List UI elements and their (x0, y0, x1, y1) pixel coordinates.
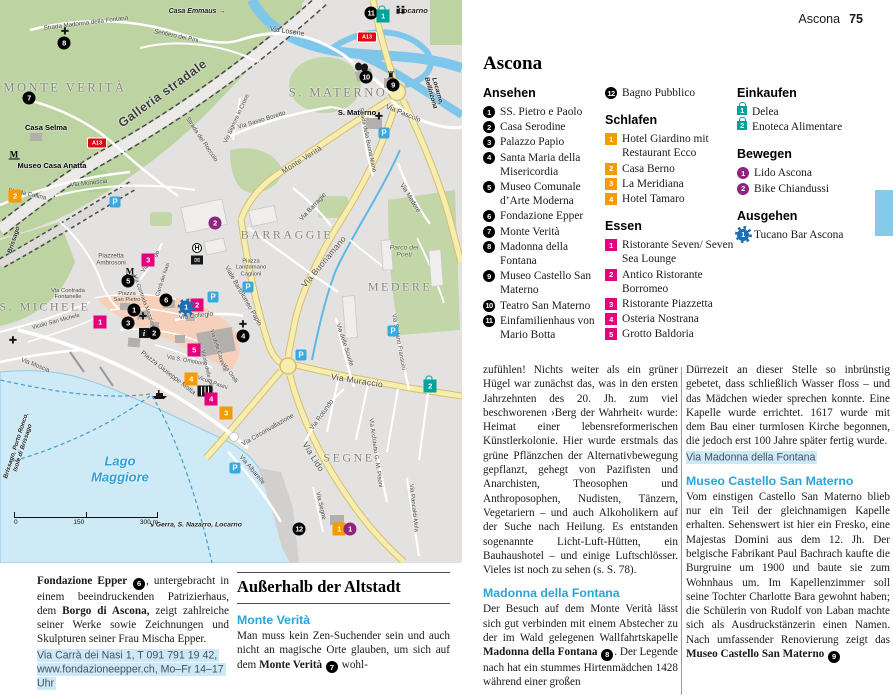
parking-icon: P (388, 326, 399, 337)
legend-item: 2Casa Berno (605, 162, 735, 176)
chapter-thumb-tab (875, 190, 893, 236)
legend-item-label: Casa Berno (622, 162, 735, 176)
marker-hotel-2: 2 (9, 190, 22, 203)
scale-bar-labels: 0150300 m (14, 519, 158, 526)
marker-sight-11: 11 (483, 315, 495, 327)
inline-marker-9: 9 (828, 651, 840, 663)
marker-hotel-4: 4 (605, 193, 617, 205)
legend-item-label: Grotto Baldoria (622, 327, 735, 341)
page-title: Ascona (483, 53, 542, 75)
legend-item: 5Museo Comunale d’Arte Moderna (483, 180, 603, 208)
marker-sight-10: 10 (360, 71, 373, 84)
legend-item: 5Grotto Baldoria (605, 327, 735, 341)
paragraph: Der Besuch auf dem Monte Verità lässt si… (483, 602, 678, 689)
legend-item-label: Palazzo Papio (500, 135, 603, 149)
mail-icon: ✉ (191, 256, 203, 265)
marker-sight-6: 6 (483, 210, 495, 222)
legend-item: 2Enoteca Alimentare (737, 120, 879, 134)
paragraph: Fondazione Epper 6, untergebracht in ein… (37, 574, 229, 647)
map-label: MEDERE (368, 281, 432, 294)
inline-marker-8: 8 (601, 649, 613, 661)
address-line: Via Madonna della Fontana (686, 451, 890, 465)
legend-item: 4Santa Maria della Misericordia (483, 151, 603, 179)
article-column-left: zufühlen! Nichts weiter als ein grüner H… (483, 363, 678, 689)
marker-move-1: 1 (344, 523, 357, 536)
parking-icon: P (110, 197, 121, 208)
ascona-city-map: MONTE VERITÀS. MATERNOBARRAGGIEMEDERESEG… (0, 0, 462, 563)
legend-item-label: La Meridiana (622, 177, 735, 191)
legend-heading-ansehen: Ansehen (483, 86, 603, 100)
church-icon: ✚ (139, 312, 147, 323)
marker-food-5: 5 (188, 344, 201, 357)
church-icon: ✚ (375, 112, 383, 123)
marker-sight-3: 3 (122, 317, 135, 330)
legend-item-label: Monte Verità (500, 225, 603, 239)
marker-sight-9: 9 (483, 270, 495, 282)
article-heading: Madonna della Fontana (483, 586, 678, 600)
legend-item: 1Hotel Giardino mit Restaurant Ecco (605, 132, 735, 160)
marker-sight-8: 8 (58, 37, 71, 50)
legend-item-label: Museo Comunale d’Arte Moderna (500, 180, 603, 208)
legend-item: 1Ristorante Seven/ Seven Sea Lounge (605, 238, 735, 266)
marker-move-2: 2 (209, 217, 222, 230)
outside-old-town-section: Außerhalb der AltstadtMonte VeritàMan mu… (237, 572, 450, 673)
map-label: S. MICHELE (0, 301, 91, 314)
marker-hotel-1: 1 (605, 133, 617, 145)
marker-shop-1: 1 (377, 10, 390, 23)
legend-item-label: Ristorante Seven/ Seven Sea Lounge (622, 238, 735, 266)
legend-item: 9Museo Castello San Materno (483, 269, 603, 297)
marker-move-1: 1 (737, 167, 749, 179)
map-label: Piazza Landamano Caglioni (236, 259, 267, 278)
marker-sight-3: 3 (483, 136, 495, 148)
church-icon: ✚ (9, 336, 17, 347)
article-heading: Museo Castello San Materno (686, 474, 890, 488)
marker-hotel-2: 2 (605, 163, 617, 175)
legend-item-label: Madonna della Fontana (500, 240, 603, 268)
paragraph: Dürrezeit an dieser Stelle so inbrünstig… (686, 363, 890, 449)
guidebook-page: MONTE VERITÀS. MATERNOBARRAGGIEMEDERESEG… (0, 0, 893, 700)
marker-hotel-3: 3 (605, 178, 617, 190)
legend-item-label: Fondazione Epper (500, 209, 603, 223)
marker-sight-12: 12 (293, 523, 306, 536)
map-label: ↘ Gerra, S. Nazarro, Locarno (148, 521, 242, 528)
map-label: Lago Maggiore (91, 453, 149, 484)
marker-food-5: 5 (605, 328, 617, 340)
marker-sight-4: 4 (483, 152, 495, 164)
map-label: BARRAGGIE (241, 229, 334, 242)
map-label: Casa Emmaus → (169, 8, 226, 16)
marker-sight-7: 7 (483, 226, 495, 238)
marker-sight-4: 4 (237, 330, 250, 343)
fondazione-epper-paragraph: Fondazione Epper 6, untergebracht in ein… (37, 574, 229, 691)
marker-food-3: 3 (605, 298, 617, 310)
legend-item-label: Teatro San Materno (500, 299, 603, 313)
paragraph: Man muss kein Zen-Suchender sein und auc… (237, 629, 450, 673)
marker-sight-7: 7 (23, 92, 36, 105)
legend-item: 6Fondazione Epper (483, 209, 603, 223)
map-label: Casa Selma (25, 124, 67, 132)
legend-item-label: Antico Ristorante Borromeo (622, 268, 735, 296)
legend-heading-ausgehen: Ausgehen (737, 209, 879, 223)
map-label: Parco dei Poeti (390, 245, 419, 260)
legend-item: 4Hotel Tamaro (605, 192, 735, 206)
parking-icon: P (230, 463, 241, 474)
legend-item-label: Osteria Nostrana (622, 312, 735, 326)
marker-sight-8: 8 (483, 241, 495, 253)
legend-heading-einkaufen: Einkaufen (737, 86, 879, 100)
marker-sight-2: 2 (483, 121, 495, 133)
marker-food-1: 1 (94, 316, 107, 329)
museum-icon: M (9, 151, 20, 160)
page-number: 75 (849, 12, 863, 26)
map-label: MONTE VERITÀ (3, 81, 126, 95)
paragraph: Vom einstigen Castello San Materno blieb… (686, 490, 890, 663)
marker-sight-5: 5 (122, 275, 135, 288)
map-label: Locarno (398, 7, 428, 15)
legend-item: 3Palazzo Papio (483, 135, 603, 149)
legend-item: 12Bagno Pubblico (605, 86, 735, 100)
inline-marker-6: 6 (133, 578, 145, 590)
legend-item-label: Santa Maria della Misericordia (500, 151, 603, 179)
legend-item: 2Casa Serodine (483, 120, 603, 134)
scale-label: 0 (14, 519, 18, 526)
marker-shop-2: 2 (737, 121, 747, 130)
marker-food-4: 4 (605, 313, 617, 325)
legend-heading-schlafen: Schlafen (605, 113, 735, 127)
map-scale-bar: 0150300 m (14, 512, 158, 526)
article-column-right: Dürrezeit an dieser Stelle so inbrünstig… (686, 363, 890, 663)
marker-sight-1: 1 (483, 106, 495, 118)
legend-column-sleep-eat: 12Bagno PubblicoSchlafen1Hotel Giardino … (605, 86, 735, 343)
legend-item-label: Casa Serodine (500, 120, 603, 134)
marker-sight-5: 5 (483, 181, 495, 193)
a13-icon: A13 (357, 32, 377, 43)
legend-item-label: Hotel Giardino mit Restaurant Ecco (622, 132, 735, 160)
address-line: Via Carrà dei Nasi 1, T 091 791 19 42, w… (37, 649, 229, 691)
marker-move-2: 2 (737, 183, 749, 195)
legend-item: 1SS. Pietro e Paolo (483, 105, 603, 119)
marker-night-1: 1 (737, 229, 749, 241)
map-label: Via Contrada Fontanelle (51, 288, 85, 301)
legend-item-label: Tucano Bar Ascona (754, 228, 879, 242)
legend-item: 1Delea (737, 105, 879, 119)
parking-icon: P (379, 128, 390, 139)
marker-sight-1: 1 (128, 304, 141, 317)
column-divider (681, 367, 682, 695)
legend-item: 1Tucano Bar Ascona (737, 228, 879, 242)
marker-sight-12: 12 (605, 87, 617, 99)
legend-item: 7Monte Verità (483, 225, 603, 239)
people-icon (397, 9, 400, 14)
legend-item: 3Ristorante Piazzetta (605, 297, 735, 311)
legend-item-label: SS. Pietro e Paolo (500, 105, 603, 119)
legend-item: 10Teatro San Materno (483, 299, 603, 313)
map-label: Piazzetta Ambrosoni (96, 253, 126, 266)
legend-item: 3La Meridiana (605, 177, 735, 191)
legend-item: 11Einfamilienhaus von Mario Botta (483, 314, 603, 342)
legend-column-sights: Ansehen1SS. Pietro e Paolo2Casa Serodine… (483, 86, 603, 343)
hotelH-icon: H (192, 243, 202, 253)
marker-sight-2: 2 (148, 327, 161, 340)
marker-food-3: 3 (142, 254, 155, 267)
legend-item-label: Ristorante Piazzetta (622, 297, 735, 311)
scale-label: 300 m (140, 519, 158, 526)
marker-hotel-3: 3 (220, 407, 233, 420)
parking-icon: P (296, 350, 307, 361)
legend-item-label: Enoteca Alimentare (752, 120, 879, 134)
map-label: Museo Casa Anatta (18, 162, 87, 170)
legend-item-label: Bagno Pubblico (622, 86, 735, 100)
inline-marker-7: 7 (326, 661, 338, 673)
legend-item-label: Delea (752, 105, 879, 119)
legend-item-label: Museo Castello San Materno (500, 269, 603, 297)
marker-sight-10: 10 (483, 300, 495, 312)
legend-item-label: Einfamilienhaus von Mario Botta (500, 314, 603, 342)
article-heading: Monte Verità (237, 613, 450, 627)
scale-label: 150 (73, 519, 84, 526)
map-label: SEGNE (323, 452, 374, 465)
marker-shop-2: 2 (424, 380, 437, 393)
marker-sight-9: 9 (387, 79, 400, 92)
legend-item-label: Bike Chiandussi (754, 182, 879, 196)
legend-item: 2Bike Chiandussi (737, 182, 879, 196)
marker-food-1: 1 (605, 239, 617, 251)
legend-item: 8Madonna della Fontana (483, 240, 603, 268)
page-header: Ascona75 (798, 12, 863, 26)
marker-sight-6: 6 (160, 294, 173, 307)
legend-item: 2Antico Ristorante Borromeo (605, 268, 735, 296)
a13-icon: A13 (87, 138, 107, 149)
marker-food-2: 2 (605, 269, 617, 281)
marker-shop-1: 1 (737, 106, 747, 115)
map-label: S. MATERNO (289, 86, 388, 100)
marker-food-4: 4 (205, 393, 218, 406)
legend-heading-essen: Essen (605, 219, 735, 233)
marker-night-1: 1 (180, 301, 193, 314)
parking-icon: P (243, 282, 254, 293)
legend-item-label: Hotel Tamaro (622, 192, 735, 206)
legend-item: 4Osteria Nostrana (605, 312, 735, 326)
legend-item: 1Lido Ascona (737, 166, 879, 180)
section-title: Außerhalb der Altstadt (237, 572, 450, 604)
legend-heading-bewegen: Bewegen (737, 147, 879, 161)
marker-hotel-4: 4 (185, 373, 198, 386)
paragraph: zufühlen! Nichts weiter als ein grüner H… (483, 363, 678, 577)
scale-bar-line (14, 512, 158, 518)
legend-column-shop-move-out: Einkaufen1Delea2Enoteca AlimentareBewege… (737, 86, 879, 243)
legend-item-label: Lido Ascona (754, 166, 879, 180)
parking-icon: P (208, 292, 219, 303)
section-name: Ascona (798, 12, 840, 26)
